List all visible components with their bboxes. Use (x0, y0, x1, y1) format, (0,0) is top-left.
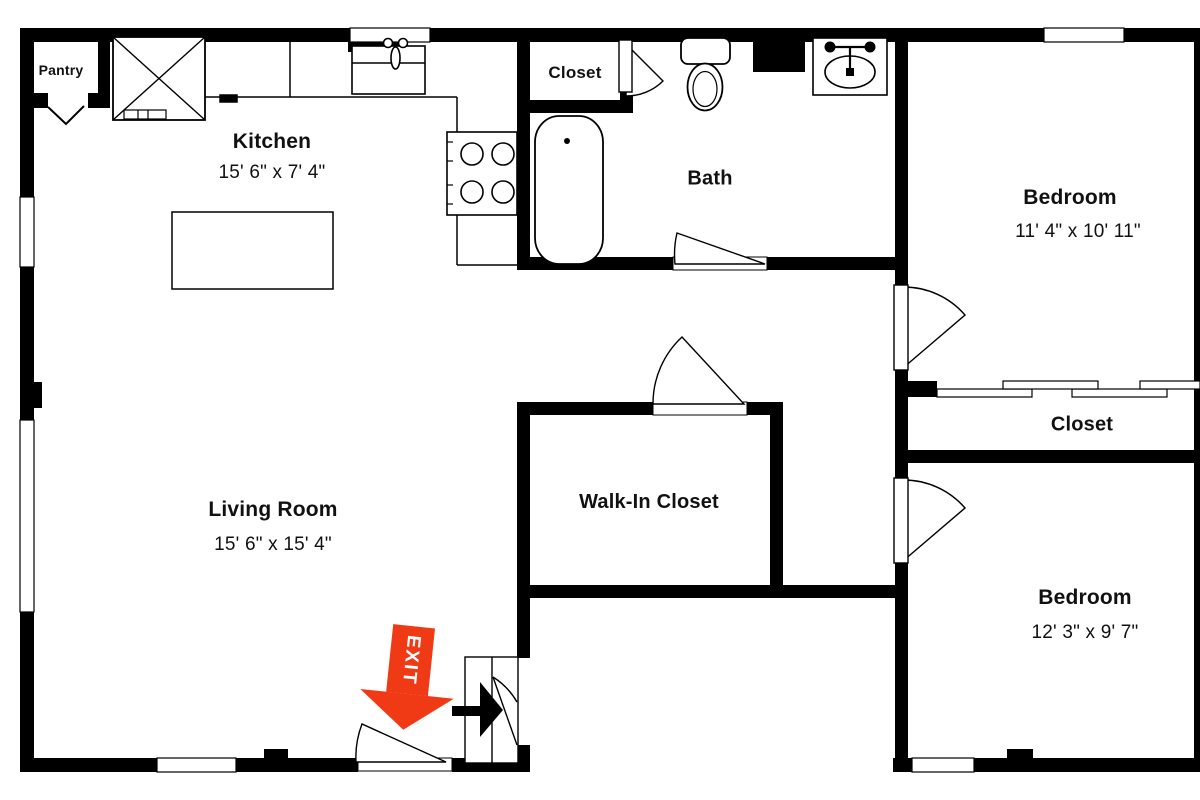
floor-plan: Pantry Kitchen 15' 6" x 7' 4" Closet Bat… (0, 0, 1200, 800)
room-dims-kitchen: 15' 6" x 7' 4" (219, 162, 326, 184)
room-label-bath: Bath (687, 168, 732, 191)
bathtub-icon (535, 116, 603, 264)
room-dims-bedroom-top: 11' 4" x 10' 11" (1015, 221, 1141, 243)
room-label-living-room: Living Room (208, 498, 337, 522)
room-dims-living-room: 15' 6" x 15' 4" (214, 534, 332, 556)
window-icon (20, 420, 34, 612)
window-icon (912, 758, 974, 772)
room-label-kitchen: Kitchen (233, 130, 311, 154)
exterior-walls (20, 28, 1200, 772)
toilet-icon (681, 38, 730, 111)
window-icon (20, 197, 34, 267)
refrigerator-icon (113, 37, 205, 120)
vanity-sink-icon (813, 38, 887, 95)
room-label-pantry: Pantry (39, 62, 84, 78)
room-label-walk-in-closet: Walk-In Closet (574, 485, 724, 519)
room-label-bedroom-bottom: Bedroom (1038, 586, 1132, 610)
door-swing-icon (675, 233, 765, 264)
door-leaf (894, 478, 908, 563)
wall-tabs (34, 36, 1033, 759)
room-label-bedroom-top: Bedroom (1023, 186, 1117, 210)
door-leaf (619, 40, 632, 92)
kitchen-sink-icon (352, 39, 425, 95)
door-swing-icon (903, 480, 965, 561)
room-label-bath-closet: Closet (548, 63, 601, 83)
interior-walls (34, 42, 1200, 772)
door-swing-icon (653, 337, 744, 404)
door-leaf (894, 285, 908, 370)
window-icon (1044, 28, 1124, 42)
window-icon (157, 758, 236, 772)
room-label-hall-closet: Closet (1051, 414, 1113, 437)
floor-plan-drawing (0, 0, 1200, 800)
bath-chase (753, 38, 805, 72)
exit-arrow-icon: EXIT (357, 617, 462, 732)
kitchen-island-icon (172, 212, 333, 289)
door-swing-icon (903, 287, 965, 368)
stove-icon (447, 132, 517, 215)
sliding-door-icon (937, 381, 1200, 397)
room-dims-bedroom-bottom: 12' 3" x 9' 7" (1032, 622, 1139, 644)
bifold-door-icon (48, 106, 84, 124)
